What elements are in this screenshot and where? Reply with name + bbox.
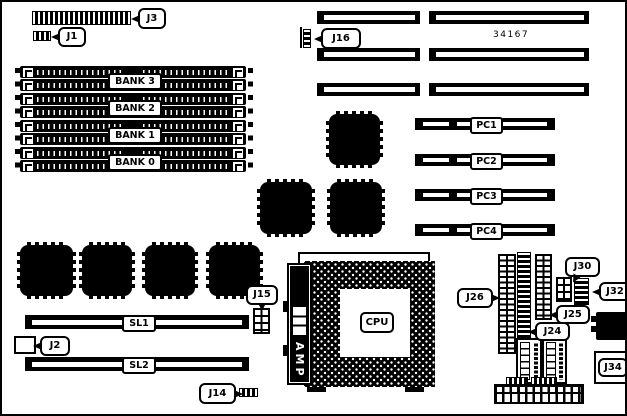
simm-clip xyxy=(23,135,33,144)
j14-label: J14 xyxy=(209,389,227,399)
socket-foot xyxy=(405,387,424,392)
chip-pins xyxy=(312,189,315,227)
bank3-tag: BANK 3 xyxy=(108,73,162,90)
pc3-slot: PC3 xyxy=(415,189,555,201)
slot-stripe xyxy=(423,193,449,197)
chip-pins xyxy=(260,252,263,289)
pointer-wedge xyxy=(258,303,266,311)
keyboard-connector-tab xyxy=(591,326,597,332)
motherboard-diagram: J3 J1 BANK 3 BANK 2 BANK 1 BANK 0 34167 … xyxy=(0,0,627,416)
bank3-label: BANK 3 xyxy=(115,77,155,87)
simm-rail-right xyxy=(248,68,253,173)
chip-pins xyxy=(257,189,260,227)
sl1-tag: SL1 xyxy=(122,315,156,332)
power-pins-bottom xyxy=(497,394,581,402)
chip-pins xyxy=(142,252,145,289)
j15-label: J15 xyxy=(253,290,271,300)
bank1-label: BANK 1 xyxy=(115,131,155,141)
simm-clip xyxy=(233,68,243,77)
j30-label: J30 xyxy=(574,262,592,272)
j1-header-connector xyxy=(33,31,51,41)
isa-slot xyxy=(317,83,420,96)
isa-slot xyxy=(429,11,589,24)
simm-clip xyxy=(23,162,33,171)
simm-clip xyxy=(23,108,33,117)
j32-callout: J32 xyxy=(599,282,627,301)
isa-slot xyxy=(317,48,420,61)
amp-tab xyxy=(283,301,288,312)
simm-clip xyxy=(23,68,33,77)
j30-callout: J30 xyxy=(565,257,600,277)
j24-callout: J24 xyxy=(535,322,570,341)
slot-stripe xyxy=(503,158,547,162)
amp-label: AMP xyxy=(293,342,306,379)
chip-pins xyxy=(327,189,330,227)
slot-stripe xyxy=(423,228,449,232)
bank0-tag: BANK 0 xyxy=(108,154,162,171)
simm-clip xyxy=(23,95,33,104)
bank1-tag: BANK 1 xyxy=(108,127,162,144)
slot-stripe xyxy=(503,122,547,126)
j34-callout: J34 xyxy=(598,358,627,377)
chip-pins xyxy=(380,121,383,158)
socket-stripe xyxy=(534,342,538,380)
simm-clip xyxy=(233,95,243,104)
j14-callout: J14 xyxy=(199,383,236,404)
chip-pins xyxy=(17,252,20,289)
chip-pins xyxy=(195,252,198,289)
qfp-chip xyxy=(20,245,73,296)
isa-slot xyxy=(317,11,420,24)
pointer-wedge xyxy=(314,35,323,43)
pointer-wedge xyxy=(33,342,42,350)
chip-pins xyxy=(79,252,82,289)
slot-stripe xyxy=(503,193,547,197)
socket-stripe xyxy=(559,342,563,380)
sl2-label: SL2 xyxy=(129,361,149,371)
pc3-label: PC3 xyxy=(476,192,497,202)
simm-clip xyxy=(233,122,243,131)
power-pins-top xyxy=(497,387,581,392)
j16-header-connector xyxy=(303,29,311,48)
sl2-slot: SL2 xyxy=(25,357,249,371)
j34-label: J34 xyxy=(604,363,622,373)
qfp-chip xyxy=(260,182,312,234)
pc4-label: PC4 xyxy=(476,227,497,237)
j2-callout: J2 xyxy=(40,336,70,356)
simm-clip xyxy=(233,81,243,90)
pc1-slot: PC1 xyxy=(415,118,555,130)
chip-pins xyxy=(132,252,135,289)
pc2-label: PC2 xyxy=(476,157,497,167)
cpu-label: CPU xyxy=(366,317,389,328)
j3-callout: J3 xyxy=(138,8,166,29)
pointer-wedge xyxy=(51,33,60,41)
board-number: 34167 xyxy=(493,30,529,40)
pointer-wedge xyxy=(549,311,558,319)
slot-stripe xyxy=(423,122,449,126)
j24-label: J24 xyxy=(544,327,562,337)
pointer-wedge xyxy=(592,288,601,296)
amp-tab xyxy=(283,345,288,356)
j26-connector xyxy=(498,254,516,354)
pc2-tag: PC2 xyxy=(470,153,503,170)
j1-callout: J1 xyxy=(58,27,86,47)
j24-connector xyxy=(517,252,531,338)
sl1-slot: SL1 xyxy=(25,315,249,329)
isa-slot xyxy=(429,48,589,61)
j1-label: J1 xyxy=(67,32,78,42)
qfp-chip xyxy=(329,114,380,165)
chip-pins xyxy=(382,189,385,227)
cpu-socket: CPU xyxy=(304,261,435,387)
qfp-chip xyxy=(145,245,195,296)
socket-foot xyxy=(307,387,326,392)
j32-label: J32 xyxy=(606,287,624,297)
pc1-label: PC1 xyxy=(476,121,497,131)
sl1-label: SL1 xyxy=(129,319,149,329)
pointer-wedge xyxy=(131,15,140,23)
sl2-tag: SL2 xyxy=(122,357,156,374)
simm-clip xyxy=(233,108,243,117)
simm-clip xyxy=(233,162,243,171)
simm-clip xyxy=(233,149,243,158)
j16-pin-strip xyxy=(300,27,302,48)
socket-cells xyxy=(546,342,556,380)
j2-label: J2 xyxy=(50,341,61,351)
pc3-tag: PC3 xyxy=(470,188,503,205)
simm-clip xyxy=(23,81,33,90)
j15-connector xyxy=(253,308,270,334)
chip-pins xyxy=(73,252,76,289)
bank2-tag: BANK 2 xyxy=(108,100,162,117)
chip-pins xyxy=(206,252,209,289)
amp-window xyxy=(293,307,306,335)
j26-label: J26 xyxy=(466,293,484,303)
power-connector xyxy=(494,384,584,404)
pc4-slot: PC4 xyxy=(415,224,555,236)
chip-pins xyxy=(326,121,329,158)
keyboard-connector xyxy=(596,312,627,340)
pc4-tag: PC4 xyxy=(470,223,503,240)
pointer-wedge xyxy=(528,328,537,336)
slot-stripe xyxy=(503,228,547,232)
pc2-slot: PC2 xyxy=(415,154,555,166)
cpu-tag: CPU xyxy=(360,312,394,333)
keyboard-connector-tab xyxy=(591,316,597,322)
pc1-tag: PC1 xyxy=(470,117,503,134)
slot-stripe xyxy=(423,158,449,162)
qfp-chip xyxy=(330,182,382,234)
simm-clip xyxy=(23,149,33,158)
pointer-wedge xyxy=(491,294,500,302)
j3-label: J3 xyxy=(147,14,158,24)
j26-callout: J26 xyxy=(457,288,493,308)
socket-cells xyxy=(520,342,530,380)
amp-module: AMP xyxy=(287,263,312,385)
pointer-wedge xyxy=(234,390,243,398)
j25-label: J25 xyxy=(564,310,582,320)
bank2-label: BANK 2 xyxy=(115,104,155,114)
isa-slot xyxy=(429,83,589,96)
simm-clip xyxy=(23,122,33,131)
j16-label: J16 xyxy=(332,34,350,44)
bank0-label: BANK 0 xyxy=(115,158,155,168)
simm-clip xyxy=(233,135,243,144)
j16-callout: J16 xyxy=(321,28,361,49)
j15-callout: J15 xyxy=(246,285,278,305)
j3-header-connector xyxy=(32,11,131,25)
qfp-chip xyxy=(82,245,132,296)
